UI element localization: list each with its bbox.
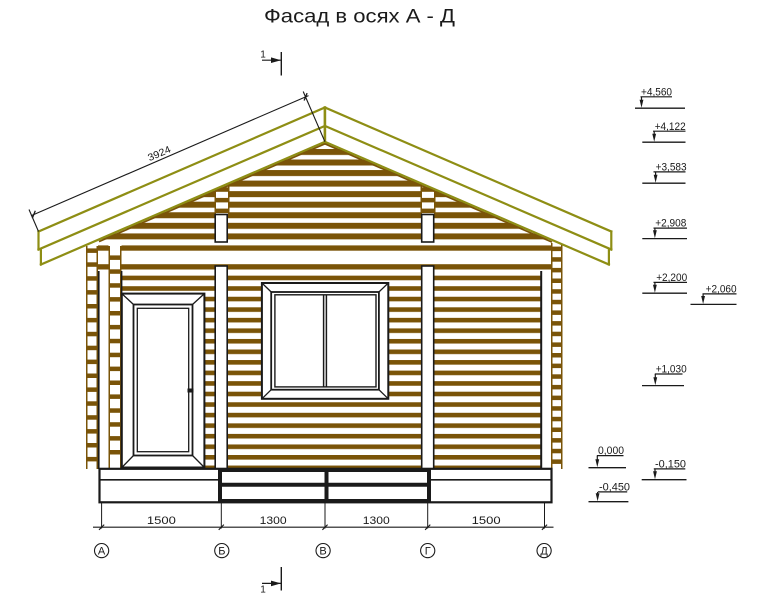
svg-text:1500: 1500 [472,515,501,527]
svg-text:1300: 1300 [363,515,390,527]
svg-text:В: В [319,545,326,557]
svg-text:1300: 1300 [260,515,287,527]
svg-text:А: А [98,545,106,557]
svg-text:1: 1 [260,50,266,61]
svg-text:Г: Г [425,545,431,557]
svg-text:1500: 1500 [147,515,176,527]
svg-text:Б: Б [218,545,225,557]
svg-text:Д: Д [540,545,548,557]
svg-text:Фасад в осях А - Д: Фасад в осях А - Д [264,6,455,28]
svg-text:3924: 3924 [146,144,173,164]
svg-text:1: 1 [260,585,266,596]
